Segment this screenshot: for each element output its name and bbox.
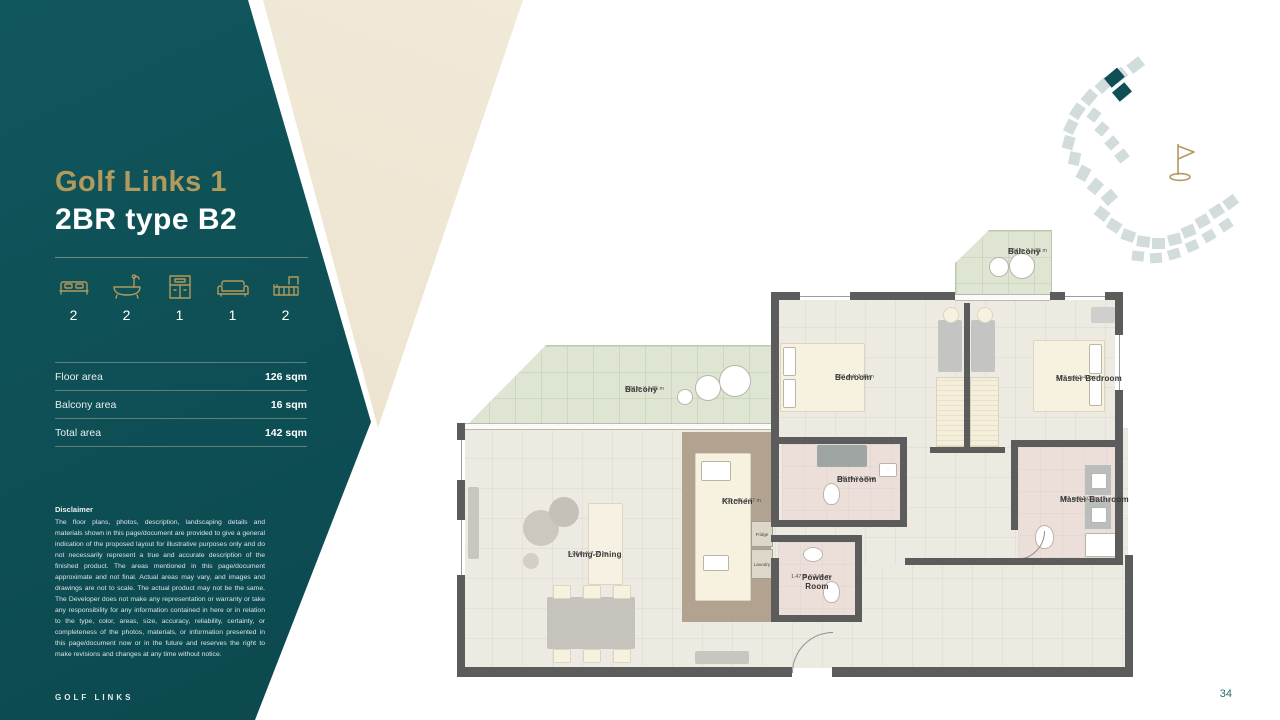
golf-flag-icon	[1170, 144, 1194, 180]
dining-chair	[553, 649, 571, 663]
wall	[1011, 440, 1119, 447]
window	[1065, 292, 1105, 300]
area-value: 142 sqm	[265, 427, 307, 439]
closet	[1091, 307, 1115, 323]
wall	[832, 667, 1133, 677]
wall	[905, 558, 1123, 565]
wall	[1125, 555, 1133, 677]
brochure-page: Golf Links 1 2BR type B2 2	[0, 0, 1280, 720]
balcony-chair	[1009, 253, 1035, 279]
unit-type: 2BR type B2	[55, 201, 237, 238]
fridge-box: Fridge	[751, 521, 773, 547]
sidebar: Golf Links 1 2BR type B2 2	[0, 0, 340, 720]
bed-icon	[52, 272, 96, 300]
table-row-total-area: Total area 142 sqm	[55, 419, 307, 447]
entry-bench	[695, 651, 749, 664]
wall	[855, 542, 862, 622]
footer-brand: GOLF LINKS	[55, 693, 133, 702]
area-label: Floor area	[55, 371, 103, 383]
wall	[771, 615, 862, 622]
wall	[930, 447, 1005, 453]
balcony-icon	[264, 272, 308, 300]
dining-chair	[553, 585, 571, 599]
dining-chair	[613, 649, 631, 663]
wall	[775, 520, 907, 527]
area-table: Floor area 126 sqm Balcony area 16 sqm T…	[55, 362, 307, 447]
basin	[1091, 507, 1107, 523]
wall	[771, 535, 862, 542]
page-title: Golf Links 1 2BR type B2	[55, 164, 237, 238]
kitchen-sink	[703, 555, 729, 571]
shower-tray	[1085, 533, 1117, 557]
toilet	[823, 483, 840, 505]
disclaimer: Disclaimer The floor plans, photos, desc…	[55, 505, 265, 660]
area-label: Total area	[55, 427, 101, 439]
fridge-label: Fridge	[756, 532, 769, 537]
wall	[775, 437, 907, 444]
feature-icons-row: 2 2	[52, 272, 308, 323]
wall	[457, 667, 792, 677]
balcony-chair	[989, 257, 1009, 277]
kitchen-icon	[158, 272, 202, 300]
dining-chair	[583, 585, 601, 599]
wall	[1011, 440, 1018, 530]
chair	[943, 307, 959, 323]
balcony-chair	[719, 365, 751, 397]
pillow	[783, 379, 796, 408]
wardrobe	[970, 377, 999, 447]
table-row-balcony-area: Balcony area 16 sqm	[55, 391, 307, 419]
floor-plan: Fridge Laundry	[455, 225, 1145, 687]
window	[457, 520, 465, 575]
project-name: Golf Links 1	[55, 164, 237, 201]
tv-console	[468, 487, 479, 559]
feature-balconies: 2	[264, 272, 308, 323]
window	[457, 440, 465, 480]
armchair	[549, 497, 579, 527]
feature-bedrooms: 2	[52, 272, 96, 323]
feature-bathrooms: 2	[105, 272, 149, 323]
living-count: 1	[211, 307, 255, 323]
wall	[771, 558, 779, 622]
sofa	[588, 503, 623, 585]
wall	[771, 432, 779, 527]
pillow	[783, 347, 796, 376]
balcony-table	[677, 389, 693, 405]
dining-chair	[613, 585, 631, 599]
basin	[1091, 473, 1107, 489]
balcony-sliding-door	[955, 294, 1050, 301]
bedroom-count: 2	[52, 307, 96, 323]
balcony-count: 2	[264, 307, 308, 323]
desk	[971, 320, 995, 372]
bathroom-count: 2	[105, 307, 149, 323]
wall	[900, 437, 907, 527]
bath-sink	[879, 463, 897, 477]
table-row-floor-area: Floor area 126 sqm	[55, 362, 307, 391]
balcony-chair	[695, 375, 721, 401]
shower	[817, 445, 867, 467]
page-number: 34	[1220, 688, 1232, 700]
divider	[55, 257, 308, 258]
disclaimer-body: The floor plans, photos, description, la…	[55, 517, 265, 660]
disclaimer-title: Disclaimer	[55, 505, 265, 514]
coffee-table	[523, 553, 539, 569]
pillow	[1089, 344, 1102, 374]
stove	[701, 461, 731, 481]
sofa-icon	[211, 272, 255, 300]
laundry-label: Laundry	[754, 562, 770, 567]
area-value: 16 sqm	[271, 399, 307, 411]
area-label: Balcony area	[55, 399, 116, 411]
kitchen-count: 1	[158, 307, 202, 323]
dining-chair	[583, 649, 601, 663]
wardrobe	[936, 377, 965, 447]
feature-kitchens: 1	[158, 272, 202, 323]
desk	[938, 320, 962, 372]
window	[800, 292, 850, 300]
feature-living: 1	[211, 272, 255, 323]
dining-table	[547, 597, 635, 649]
laundry-box: Laundry	[751, 549, 773, 579]
balcony-sliding-door	[465, 423, 771, 430]
wall	[1115, 292, 1123, 565]
chair	[977, 307, 993, 323]
wall	[964, 303, 970, 450]
bath-icon	[105, 272, 149, 300]
wall	[771, 292, 779, 432]
area-value: 126 sqm	[265, 371, 307, 383]
powder-sink	[803, 547, 823, 562]
